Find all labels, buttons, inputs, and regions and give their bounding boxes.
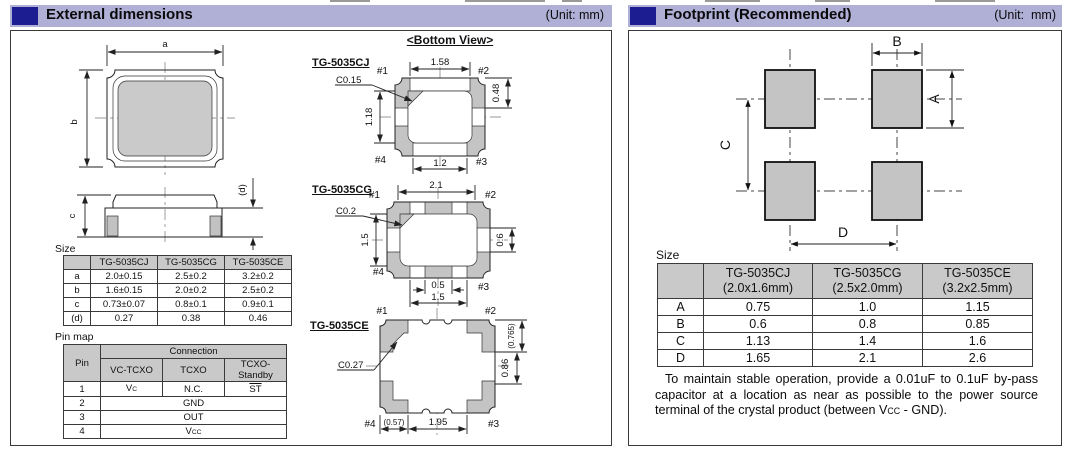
cell: 2.0±0.2	[158, 284, 225, 298]
pin-3-label: #3	[476, 157, 488, 168]
dim-d-label: (d)	[237, 184, 248, 196]
st-overline: ST	[249, 384, 261, 395]
pin-2-label: #2	[478, 66, 490, 77]
external-size-table: TG-5035CJ TG-5035CG TG-5035CE a 2.0±0.15…	[63, 255, 292, 326]
col-header: TG-5035CG (2.5x2.0mm)	[813, 264, 923, 299]
bottom-view-ce-drawing: (0.765) 0.86 (0.57) 1.95 C0.27 #1 #2 #3 …	[330, 300, 615, 443]
dim-d: (d)	[217, 178, 263, 250]
col-header-name: TG-5035CG	[813, 266, 922, 281]
cell: 1.0	[813, 299, 923, 316]
connection-header: Connection	[101, 345, 287, 359]
col-header-name: TG-5035CE	[923, 266, 1032, 281]
table-row: 3 OUT	[64, 411, 287, 425]
table-row: D 1.65 2.1 2.6	[658, 350, 1033, 367]
note-vcc-sub: CC	[887, 406, 900, 416]
col-header: TG-5035CG	[158, 256, 225, 270]
pad-top-left	[765, 70, 815, 128]
cell: 0.75	[704, 299, 813, 316]
bottom-view-cg-drawing: 2.1 C0.2 1.5 0.6 0.5 1.5 #1 #2 #3 #4	[330, 178, 615, 308]
table-header-row: Pin Connection	[64, 345, 287, 359]
cell: 1.6±0.15	[91, 284, 158, 298]
ce-dim-bottom: 1.95	[429, 417, 448, 428]
footprint-drawing: B A C D	[640, 33, 1050, 255]
pin-4-label: #4	[373, 267, 385, 278]
table-row: 2 GND	[64, 397, 287, 411]
top-view-package	[107, 70, 223, 167]
bypass-capacitor-note: To maintain stable operation, provide a …	[655, 372, 1038, 420]
ce-dim-right-top: (0.765)	[507, 323, 516, 349]
pad-bottom-left	[765, 162, 815, 220]
cropped-text-artifact	[465, 0, 545, 2]
cell: 0.8±0.1	[158, 298, 225, 312]
section-header-external-dimensions: External dimensions (Unit: mm)	[10, 5, 612, 27]
cell-span: GND	[101, 397, 287, 411]
mode-header: TCXO-Standby	[225, 359, 287, 382]
pin-4-label: #4	[364, 419, 376, 430]
footprint-dims: B A C D	[717, 33, 964, 244]
mode-header: TCXO	[163, 359, 225, 382]
col-header: TG-5035CJ (2.0x1.6mm)	[704, 264, 813, 299]
cj-chamfer-label: C0.15	[336, 75, 361, 86]
table-header-row: TG-5035CJ TG-5035CG TG-5035CE	[64, 256, 292, 270]
cropped-text-artifact	[815, 0, 850, 2]
cg-chamfer-label: C0.2	[336, 206, 356, 217]
col-header: TG-5035CE (3.2x2.5mm)	[923, 264, 1033, 299]
cropped-text-artifact	[935, 0, 995, 2]
note-text: - GND).	[900, 403, 947, 417]
dim-c: c	[67, 195, 111, 237]
cg-dim-left: 1.5	[360, 233, 371, 246]
cell: 0.27	[91, 312, 158, 326]
package-top-side-view-drawing: a b c (d)	[20, 32, 310, 252]
table-row: 1 VC N.C. ST	[64, 382, 287, 397]
ce-chamfer-label: C0.27	[338, 360, 363, 371]
cell: 0.9±0.1	[225, 298, 292, 312]
pin-number: 3	[64, 411, 101, 425]
cell: 0.38	[158, 312, 225, 326]
pin-number: 2	[64, 397, 101, 411]
datasheet-page: External dimensions (Unit: mm) Footprint…	[0, 0, 1069, 451]
ce-dim-right: 0.86	[500, 359, 511, 378]
unit-label: (Unit: mm)	[994, 8, 1056, 22]
header-square-icon	[630, 7, 656, 25]
footprint-dim-c: C	[717, 140, 733, 150]
vcc-sub: CC	[192, 429, 202, 436]
cell: 0.6	[704, 316, 813, 333]
footprint-size-table: TG-5035CJ (2.0x1.6mm) TG-5035CG (2.5x2.0…	[657, 263, 1033, 367]
dim-b: b	[69, 70, 103, 167]
pin-map-table: Pin Connection VC-TCXO TCXO TCXO-Standby…	[63, 344, 287, 439]
ce-dim-bottom-left: (0.57)	[384, 418, 405, 427]
table-row: 4 VCC	[64, 425, 287, 439]
blank-header-cell	[64, 256, 91, 270]
cell: 0.8	[813, 316, 923, 333]
blank-header-cell	[658, 264, 704, 299]
pin-1-label: #1	[369, 190, 381, 201]
cj-dim-left: 1.18	[364, 108, 375, 127]
section-title: External dimensions	[46, 6, 193, 23]
table-row: B 0.6 0.8 0.85	[658, 316, 1033, 333]
ce-package	[374, 314, 501, 419]
cell: 0.73±0.07	[91, 298, 158, 312]
col-header-size: (3.2x2.5mm)	[923, 281, 1032, 296]
section-title: Footprint (Recommended)	[664, 6, 852, 23]
pin-3-label: #3	[488, 419, 500, 430]
pad-bottom-right	[872, 162, 922, 220]
cell: 3.2±0.2	[225, 270, 292, 284]
cg-dim-right: 0.6	[495, 233, 506, 246]
cell: 2.6	[923, 350, 1033, 367]
cell: 0.85	[923, 316, 1033, 333]
row-label: b	[64, 284, 91, 298]
col-header: TG-5035CJ	[91, 256, 158, 270]
pin-header: Pin	[64, 345, 101, 382]
cell: 2.0±0.15	[91, 270, 158, 284]
footprint-pads	[765, 70, 922, 220]
bottom-view-cj-drawing: 1.58 0.48 1.18 1.2 C0.15 #1 #2 #3 #4	[330, 55, 615, 177]
cell-standby: ST	[225, 382, 287, 397]
mode-header: VC-TCXO	[101, 359, 163, 382]
table-header-row: TG-5035CJ (2.0x1.6mm) TG-5035CG (2.5x2.0…	[658, 264, 1033, 299]
vc-sub: C	[132, 386, 137, 393]
pad-top-right	[872, 70, 922, 128]
pin-1-label: #1	[376, 306, 388, 317]
row-label: A	[658, 299, 704, 316]
footprint-dim-a: A	[926, 94, 942, 104]
size-table-label: Size	[656, 248, 679, 262]
dim-b-label: b	[69, 119, 80, 124]
col-header-size: (2.5x2.0mm)	[813, 281, 922, 296]
row-label: D	[658, 350, 704, 367]
cell-nc: N.C.	[163, 382, 225, 397]
table-row: (d) 0.27 0.38 0.46	[64, 312, 292, 326]
pin-4-label: #4	[375, 155, 387, 166]
row-label: (d)	[64, 312, 91, 326]
col-header: TG-5035CE	[225, 256, 292, 270]
cell: 1.4	[813, 333, 923, 350]
cg-dim-bottom-inner: 0.5	[431, 280, 444, 291]
cg-package	[380, 195, 498, 286]
cell: 1.13	[704, 333, 813, 350]
row-label: c	[64, 298, 91, 312]
cropped-text-artifact	[330, 0, 370, 2]
footprint-dim-d: D	[838, 224, 848, 240]
side-view-package	[105, 195, 222, 237]
col-header-name: TG-5035CJ	[704, 266, 812, 281]
pin-2-label: #2	[485, 306, 497, 317]
pin-number: 4	[64, 425, 101, 439]
col-header-size: (2.0x1.6mm)	[704, 281, 812, 296]
unit-label: (Unit: mm)	[546, 8, 604, 22]
cj-dim-right: 0.48	[491, 84, 502, 103]
footprint-dim-b: B	[892, 33, 901, 49]
pin-map-label: Pin map	[55, 331, 94, 343]
cg-dim-top: 2.1	[429, 180, 442, 191]
table-row: c 0.73±0.07 0.8±0.1 0.9±0.1	[64, 298, 292, 312]
cj-package	[388, 71, 493, 164]
cj-dim-top: 1.58	[431, 57, 450, 68]
cell-vcc: VCC	[101, 425, 287, 439]
dim-a-label: a	[162, 39, 168, 50]
cj-dim-bottom: 1.2	[433, 158, 446, 169]
note-text: To maintain stable operation, provide a …	[655, 372, 1038, 417]
pin-3-label: #3	[478, 282, 490, 293]
cell: 2.1	[813, 350, 923, 367]
row-label: C	[658, 333, 704, 350]
dim-a: a	[107, 39, 223, 66]
bottom-view-title: <Bottom View>	[370, 33, 530, 47]
section-header-footprint: Footprint (Recommended) (Unit: mm)	[628, 5, 1062, 27]
pin-1-label: #1	[377, 66, 389, 77]
cell: 2.5±0.2	[158, 270, 225, 284]
cell: 1.65	[704, 350, 813, 367]
size-table-label: Size	[55, 243, 75, 255]
cell-span: OUT	[101, 411, 287, 425]
table-row: C 1.13 1.4 1.6	[658, 333, 1033, 350]
table-row: b 1.6±0.15 2.0±0.2 2.5±0.2	[64, 284, 292, 298]
dim-c-label: c	[67, 213, 78, 218]
table-row: a 2.0±0.15 2.5±0.2 3.2±0.2	[64, 270, 292, 284]
cell: 1.6	[923, 333, 1033, 350]
cell: 0.46	[225, 312, 292, 326]
cell: 1.15	[923, 299, 1033, 316]
cell-vc: VC	[101, 382, 163, 397]
pin-number: 1	[64, 382, 101, 397]
cropped-text-artifact	[705, 0, 760, 2]
table-row: A 0.75 1.0 1.15	[658, 299, 1033, 316]
cell: 2.5±0.2	[225, 284, 292, 298]
header-square-icon	[12, 7, 38, 25]
row-label: B	[658, 316, 704, 333]
cropped-text-artifact	[562, 0, 582, 2]
row-label: a	[64, 270, 91, 284]
pin-2-label: #2	[485, 190, 497, 201]
